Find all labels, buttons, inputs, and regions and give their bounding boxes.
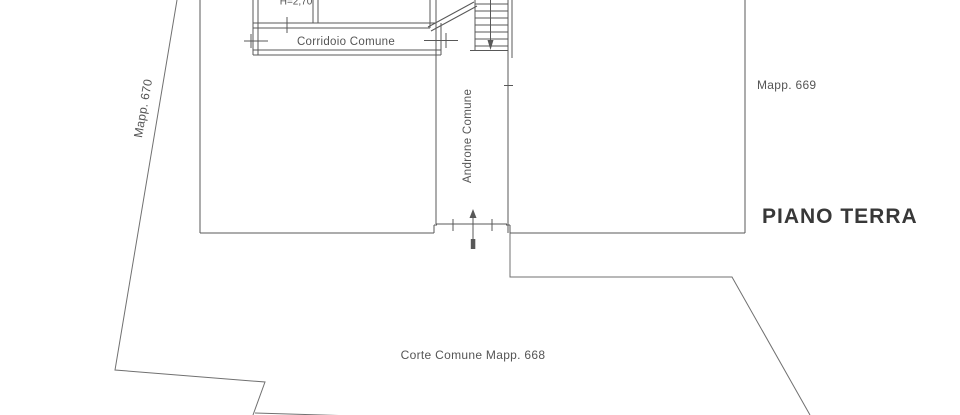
courtyard-boundary-line xyxy=(510,233,810,415)
interior-room-walls xyxy=(253,0,441,224)
entrance-threshold xyxy=(436,219,507,231)
floor-title: PIANO TERRA xyxy=(762,205,918,228)
plan-labels: H=2,70 Corridoio Comune Androne Comune M… xyxy=(131,0,816,362)
entrance-step-wall xyxy=(434,225,510,233)
parcel-left-label: Mapp. 670 xyxy=(131,78,155,139)
corridor-label: Corridoio Comune xyxy=(297,36,395,48)
parcel-670-boundary-line xyxy=(115,0,265,415)
stair-break-line xyxy=(428,2,477,31)
entrance-arrowhead-icon xyxy=(470,209,477,218)
stair-treads xyxy=(475,4,508,46)
building-outline-left-wall xyxy=(200,0,434,233)
stair-walls xyxy=(470,0,513,233)
building-outline-right-wall xyxy=(510,0,745,233)
floor-plan-drawing: H=2,70 Corridoio Comune Androne Comune M… xyxy=(0,0,960,415)
floor-title-group: PIANO TERRA xyxy=(762,205,918,228)
entrance-hall-label: Androne Comune xyxy=(462,89,474,183)
courtyard-label: Corte Comune Mapp. 668 xyxy=(401,348,546,362)
entrance-arrow-tail xyxy=(471,239,476,249)
stair-arrowhead-icon xyxy=(488,40,494,50)
room-height-label: H=2,70 xyxy=(280,0,313,8)
parcel-right-label: Mapp. 669 xyxy=(757,78,816,92)
floor-plan-canvas: H=2,70 Corridoio Comune Androne Comune M… xyxy=(0,0,960,415)
